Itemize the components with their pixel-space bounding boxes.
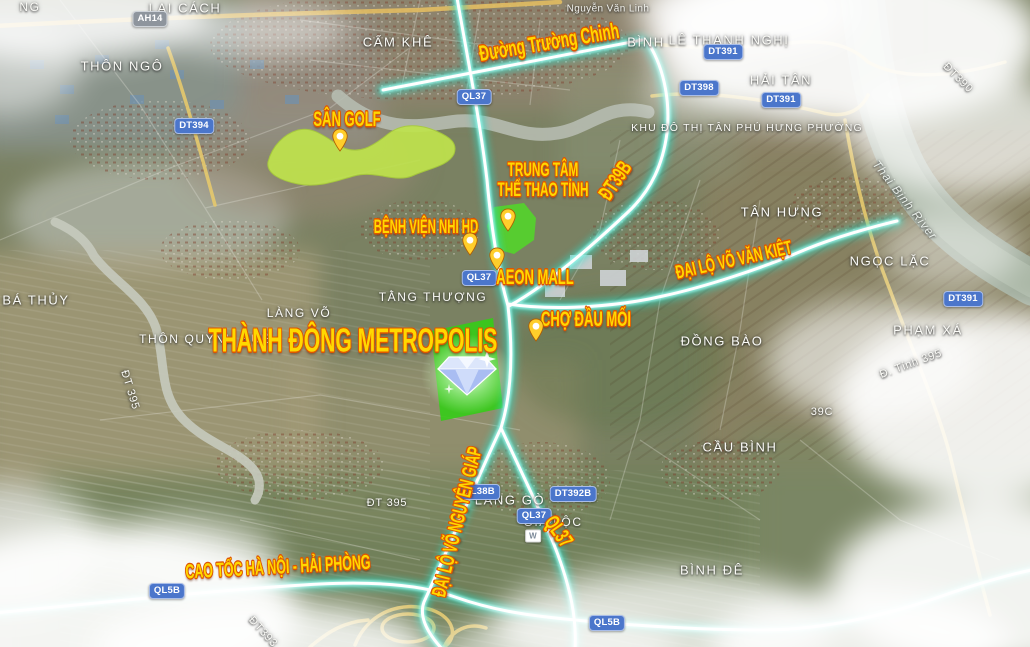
map-pin-cho-dau-moi — [528, 318, 545, 342]
poi-label-trung-tam-the-thao-tinh: TRUNG TÂM THỂ THAO TỈNH — [498, 161, 589, 201]
road-badge-ql5b-east: QL5B — [589, 615, 625, 631]
road-badge-ql37-north: QL37 — [457, 89, 492, 105]
road-name-dt395-west: ĐT 395 — [118, 369, 141, 411]
project-title: THÀNH ĐÔNG METROPOLIS — [209, 324, 498, 359]
map-pin-aeon-mall — [489, 247, 506, 271]
map-pin-san-golf — [332, 128, 349, 152]
satellite-location-map: NG LẠI CÁCH Nguyễn Văn Linh CẨM KHÊ THÔN… — [0, 0, 1030, 647]
road-badge-dt398: DT398 — [679, 80, 719, 96]
road-badge-dt391-c: DT391 — [943, 291, 983, 307]
poi-label-line2: THỂ THAO TỈNH — [498, 181, 589, 201]
road-badge-ql37-mid: QL37 — [462, 270, 497, 286]
poi-label-line1: TRUNG TÂM — [498, 161, 589, 181]
river-label-thai-binh: Thai Binh River — [870, 157, 941, 242]
map-pin-benh-vien — [462, 232, 479, 256]
place-label-binh: BÌNH — [627, 35, 664, 50]
place-label-ba-thuy: BÁ THỦY — [2, 293, 69, 308]
place-label-tang-thuong: TẰNG THƯỢNG — [379, 290, 488, 304]
place-label-lang-vo: LÀNG VÕ — [267, 306, 332, 320]
place-label-khu-do-thi-tan-phu-hung: KHU ĐÔ THỊ TÂN PHÚ HƯNG PHƯỜNG — [631, 122, 863, 134]
map-pin-trung-tam-the-thao — [500, 208, 517, 232]
poi-label-cho-dau-moi: CHỢ ĐẦU MỐI — [541, 309, 631, 331]
place-label-pham-xa: PHẠM XÁ — [893, 323, 963, 338]
road-name-dt395: ĐT 395 — [367, 497, 408, 509]
road-badge-dt391-b: DT391 — [761, 92, 801, 108]
place-label-binh-de: BÌNH ĐÊ — [680, 563, 744, 578]
place-label-dong-bao: ĐỒNG BÀO — [681, 334, 764, 349]
road-name-39c: 39C — [811, 406, 834, 418]
w-poi-icon: W — [525, 530, 541, 543]
road-label-cao-toc-ha-noi-hai-phong: CAO TỐC HÀ NỘI - HẢI PHÒNG — [185, 553, 371, 584]
road-name-d-tinh-395: Đ. Tỉnh 395 — [878, 347, 944, 381]
place-label-ngoc-lac: NGỌC LẶC — [850, 254, 931, 269]
place-label-tan-hung: TÂN HƯNG — [741, 205, 823, 220]
road-badge-dt391-a: DT391 — [703, 44, 743, 60]
road-label-dai-lo-vo-nguyen-giap: ĐẠI LỘ VÕ NGUYÊN GIÁP — [429, 445, 487, 599]
poi-label-aeon-mall: AEON MALL — [496, 267, 573, 289]
place-label-cau-binh: CẦU BÌNH — [703, 440, 778, 455]
road-label-duong-truong-chinh: Đường Trường Chinh — [477, 19, 620, 65]
road-label-dt39b: ĐT39B — [595, 158, 636, 205]
road-badge-ql5b-west: QL5B — [149, 583, 185, 599]
place-label-partial-ng: NG — [19, 0, 40, 14]
road-name-dt390: ĐT390 — [941, 61, 976, 96]
place-label-cam-khe: CẨM KHÊ — [363, 35, 433, 50]
road-badge-dt392b: DT392B — [550, 486, 597, 502]
place-label-thon-ngo: THÔN NGÔ — [81, 59, 164, 74]
road-name-dt393: ĐT393 — [246, 614, 280, 647]
street-label-nguyen-van-linh: Nguyễn Văn Linh — [567, 4, 650, 15]
road-label-dai-lo-vo-van-kiet: ĐẠI LỘ VÕ VĂN KIỆT — [674, 238, 794, 283]
road-badge-dt394: DT394 — [174, 118, 214, 134]
place-label-hai-tan: HẢI TÂN — [750, 73, 812, 88]
road-badge-ah14: AH14 — [132, 11, 167, 27]
